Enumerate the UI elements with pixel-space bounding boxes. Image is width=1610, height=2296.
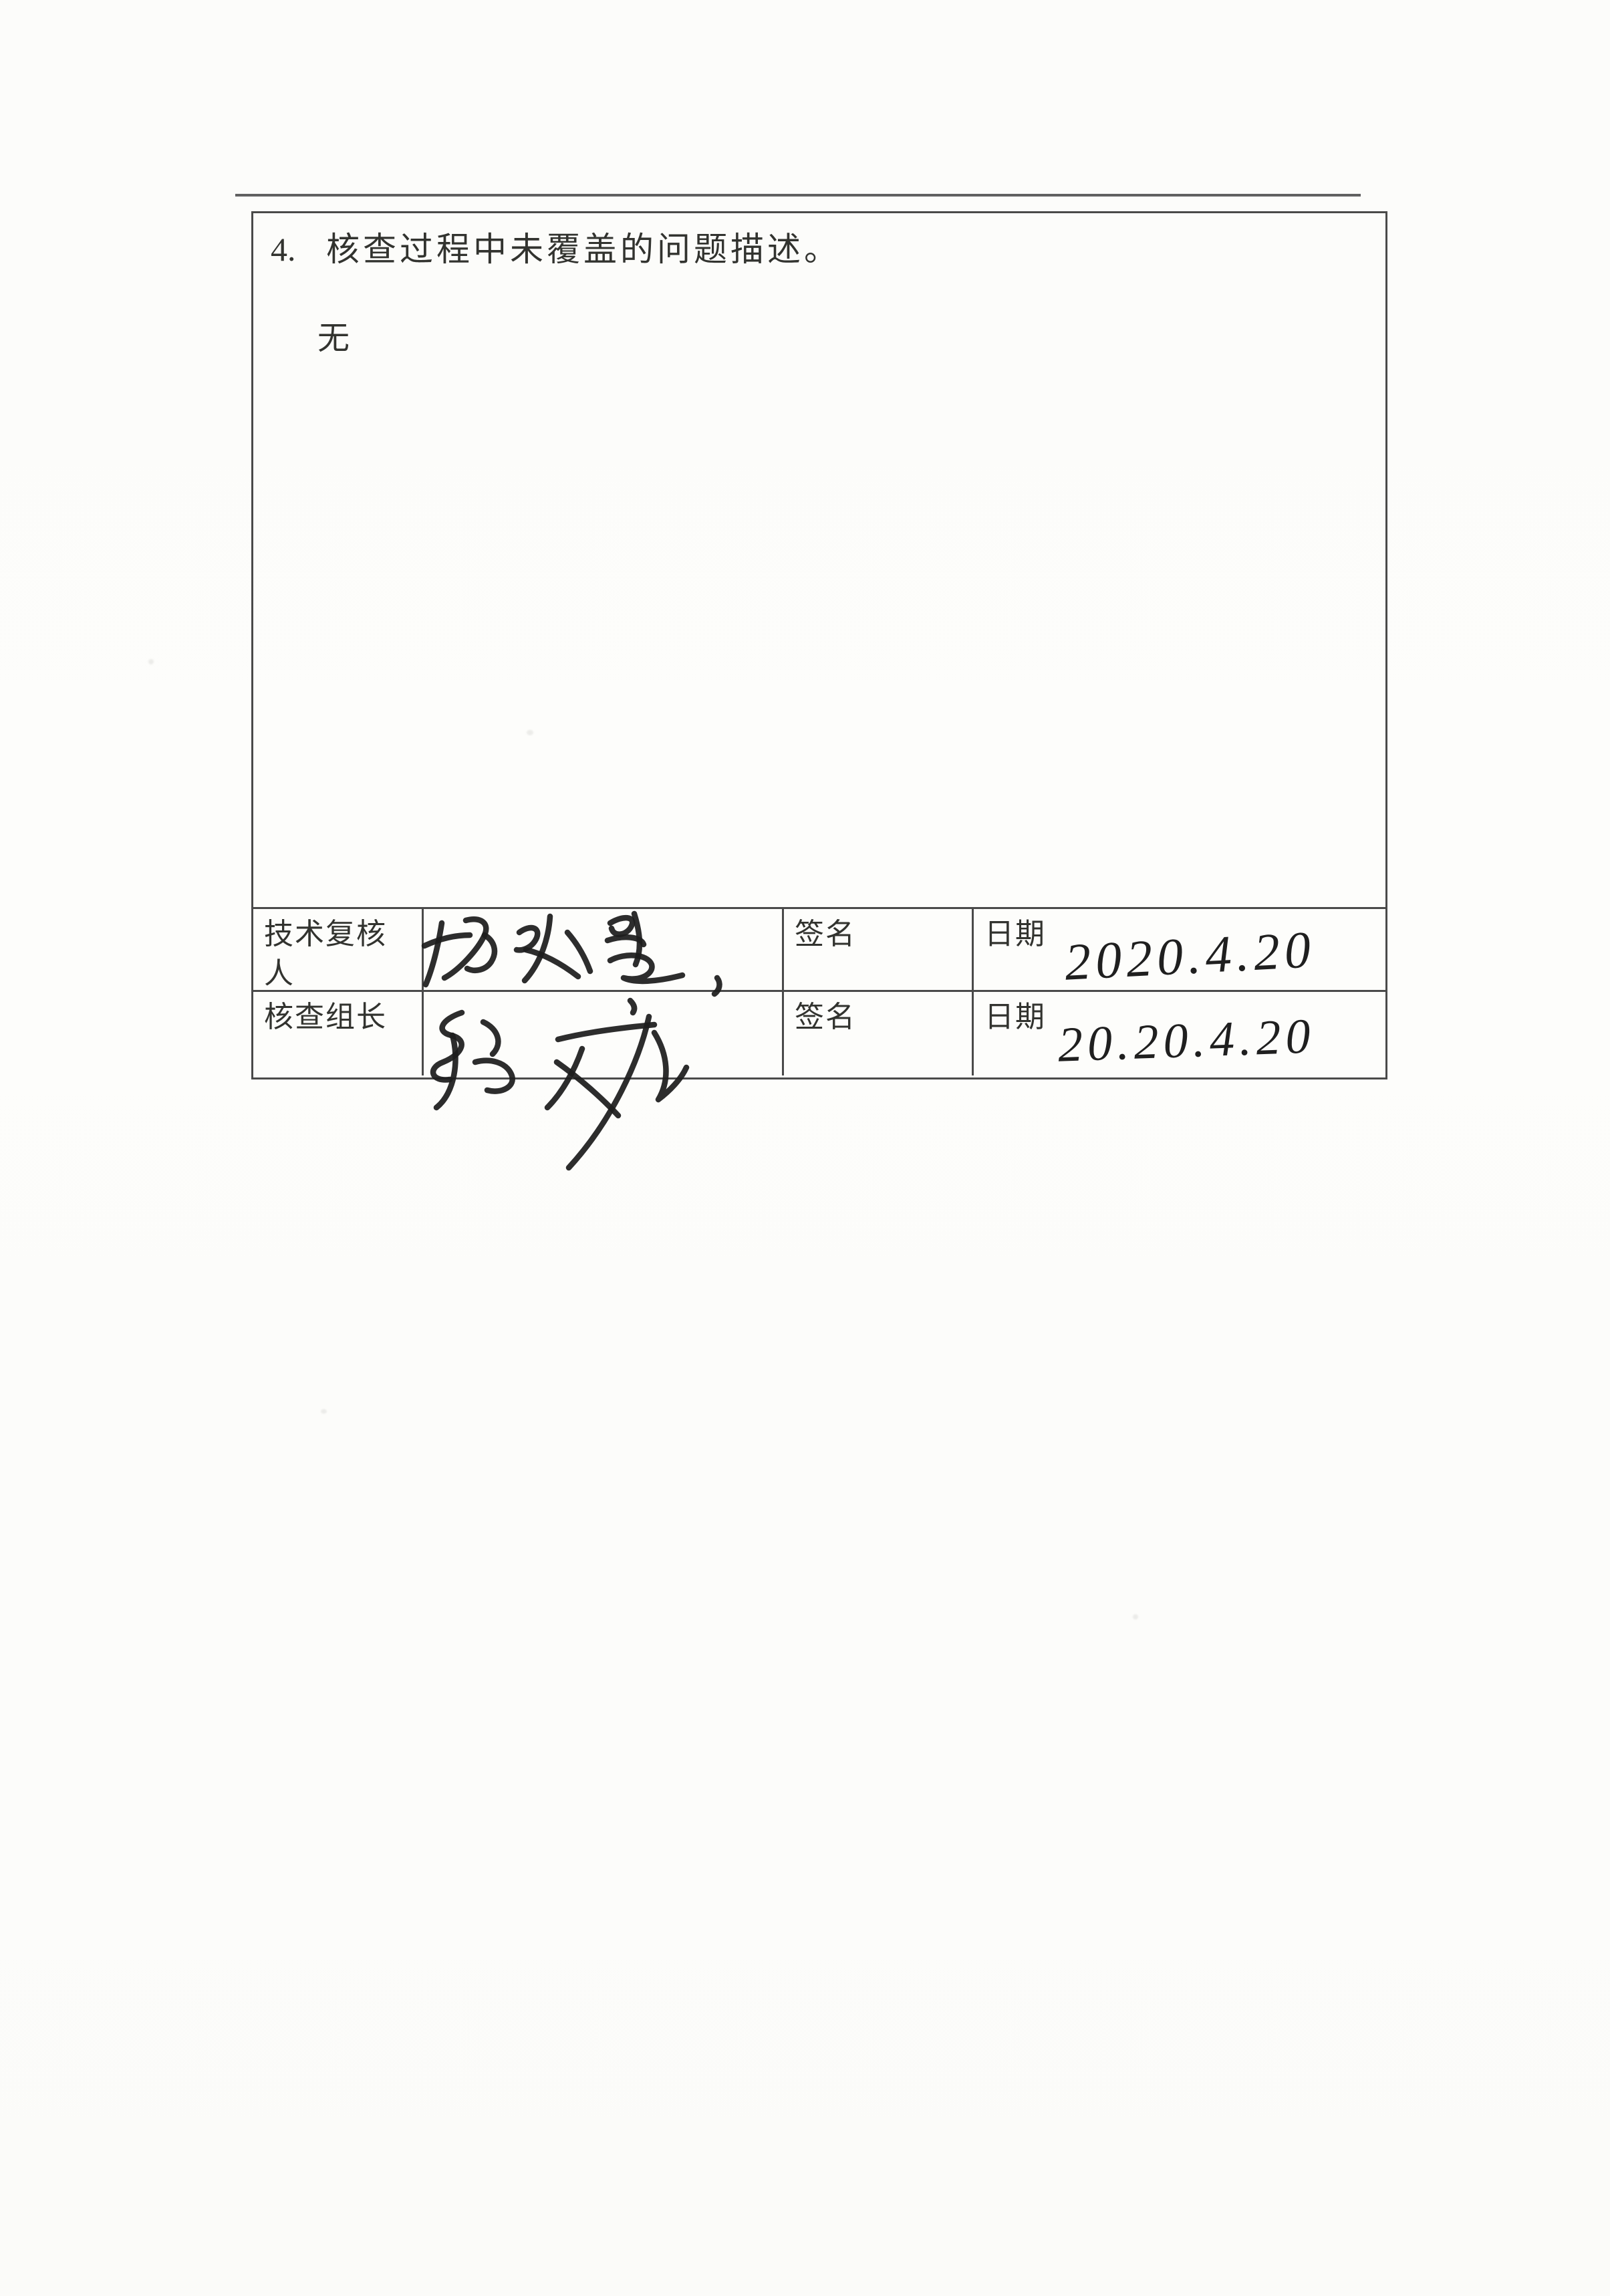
sign-label: 签名 (795, 1001, 856, 1033)
signature-cell-row1 (422, 909, 782, 990)
section-content-cell: 4. 核查过程中未覆盖的问题描述。 无 (253, 213, 1385, 909)
date-label: 日期 (984, 918, 1046, 950)
sign-label-cell-row1: 签名 (782, 909, 972, 990)
role-cell-team-leader: 核查组长 (253, 990, 422, 1075)
date-label: 日期 (984, 1001, 1046, 1033)
sign-label-cell-row2: 签名 (782, 990, 972, 1075)
section-box: 4. 核查过程中未覆盖的问题描述。 无 技术复核人 签名 日期 核查组长 签名 (251, 211, 1387, 1079)
role-label: 技术复核人 (264, 918, 387, 990)
role-cell-technical-reviewer: 技术复核人 (253, 909, 422, 990)
signature-cell-row2 (422, 990, 782, 1075)
section-number: 4. (271, 231, 296, 268)
scan-artifact-line (235, 194, 1361, 197)
section-body-text: 无 (317, 311, 1385, 358)
handwritten-date-row2: 20.20.4.20 (1057, 1008, 1316, 1073)
section-heading: 4. 核查过程中未覆盖的问题描述。 (253, 213, 1385, 271)
scan-speck (527, 730, 533, 735)
section-title: 核查过程中未覆盖的问题描述。 (326, 231, 841, 268)
scanned-page: 4. 核查过程中未覆盖的问题描述。 无 技术复核人 签名 日期 核查组长 签名 (0, 0, 1610, 2296)
scan-speck (148, 659, 154, 664)
role-label: 核查组长 (264, 1001, 387, 1033)
scan-speck (1133, 1614, 1138, 1620)
sign-label: 签名 (795, 918, 856, 950)
scan-speck (321, 1409, 327, 1414)
